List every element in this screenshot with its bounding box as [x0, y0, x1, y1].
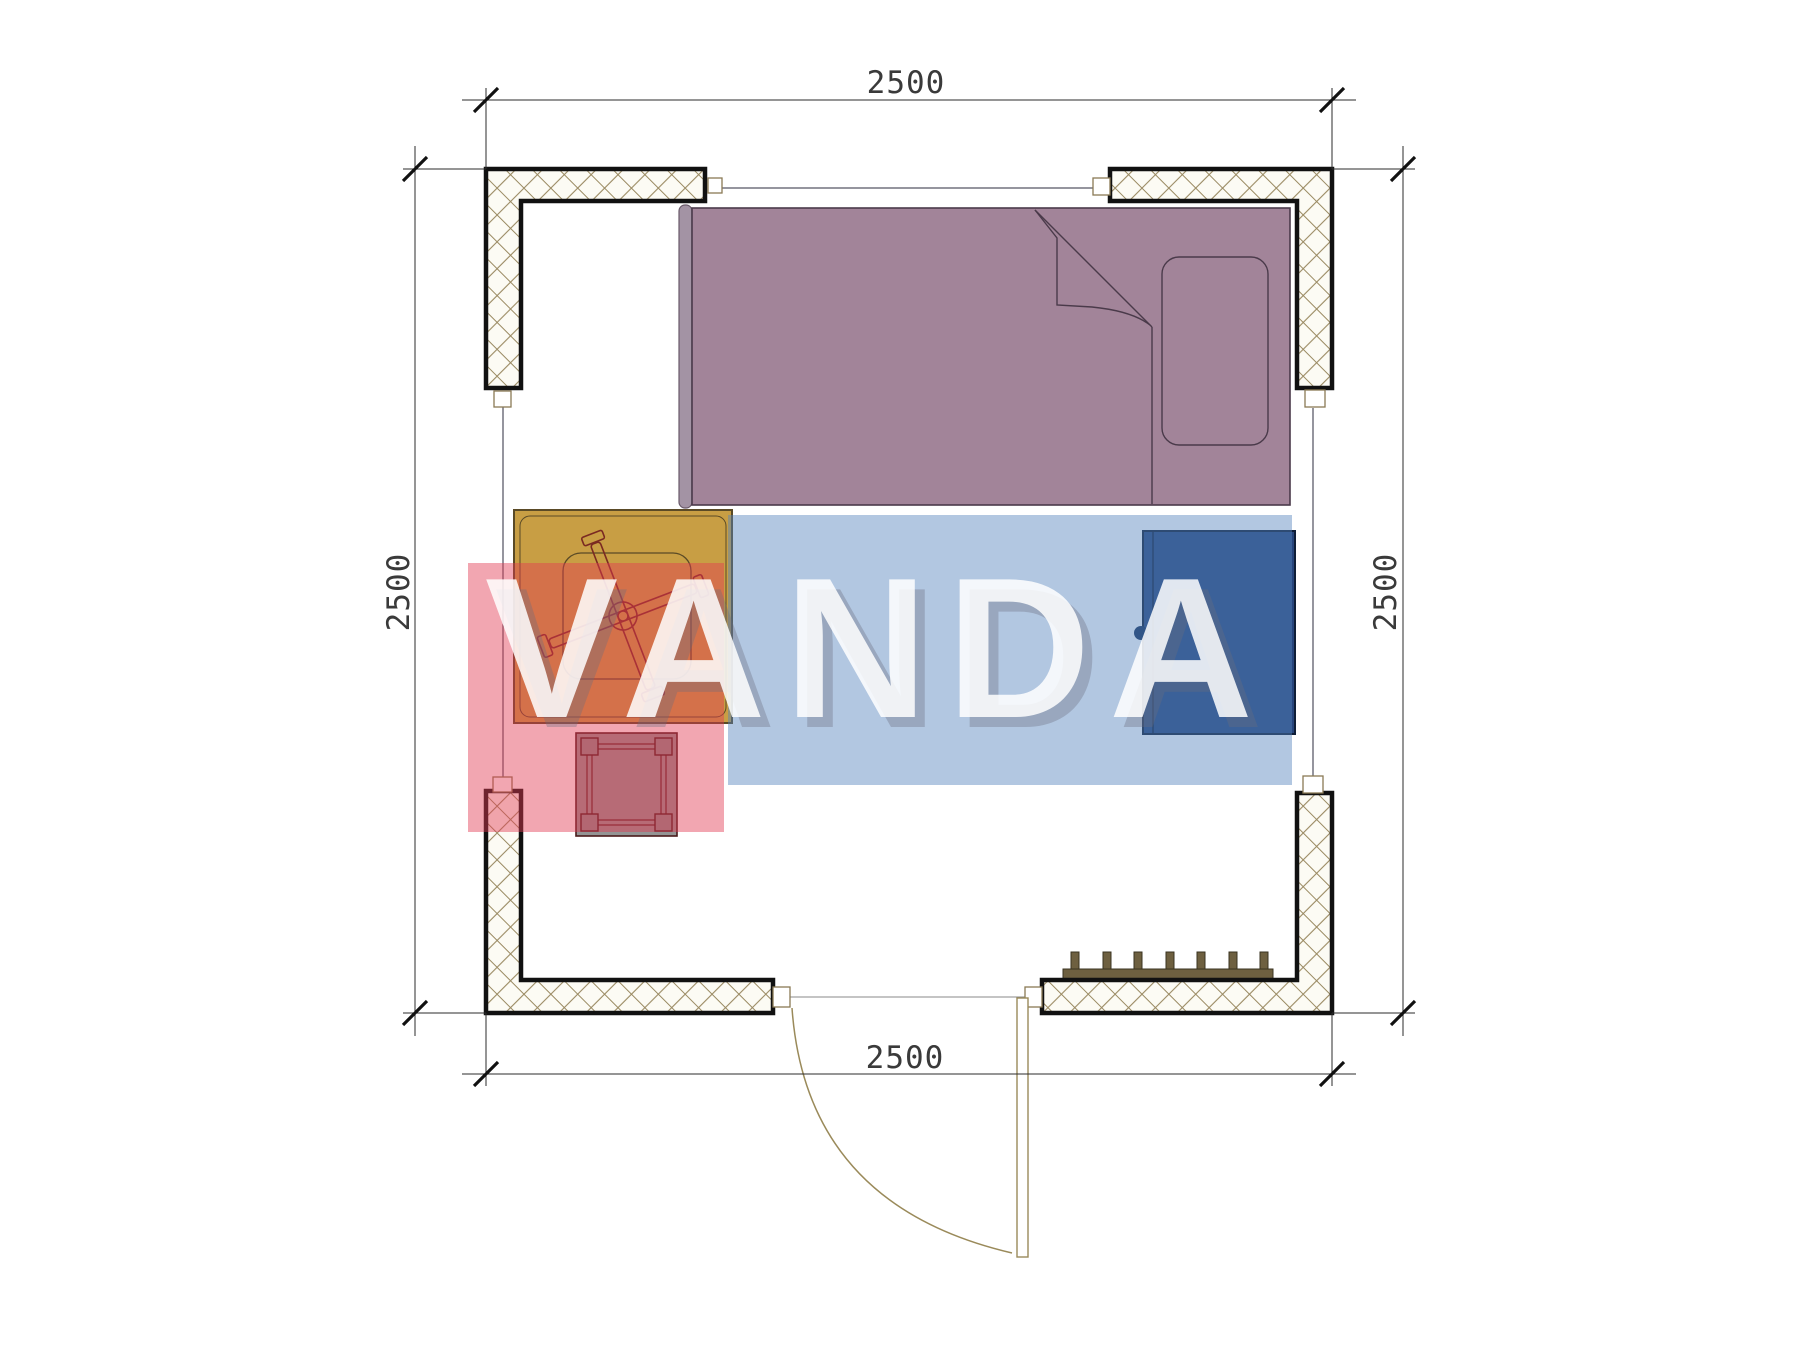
- dimension-label-left: 2500: [381, 553, 417, 632]
- radiator-section: [1071, 952, 1079, 969]
- wall-bottom-right: [1042, 793, 1332, 1013]
- dimension-label-top: 2500: [867, 65, 946, 101]
- watermark-text: VANDA: [485, 537, 1271, 760]
- pillow: [1162, 257, 1268, 445]
- door-leaf: [1017, 998, 1028, 1257]
- dimension-label-right: 2500: [1368, 553, 1404, 632]
- floor-plan-page: 2500 2500 2500 2500 VANDA VANDA: [0, 0, 1800, 1350]
- bed-headboard: [679, 205, 692, 508]
- radiator-section: [1166, 952, 1174, 969]
- radiator: [1063, 952, 1273, 981]
- radiator-section: [1229, 952, 1237, 969]
- watermark: VANDA VANDA: [468, 515, 1292, 832]
- radiator-section: [1103, 952, 1111, 969]
- floor-plan-drawing: 2500 2500 2500 2500 VANDA VANDA: [0, 0, 1800, 1350]
- radiator-section: [1197, 952, 1205, 969]
- door: [773, 987, 1042, 1257]
- wall-top-left: [486, 169, 705, 388]
- radiator-section: [1260, 952, 1268, 969]
- radiator-section: [1134, 952, 1142, 969]
- dimension-label-bottom: 2500: [866, 1040, 945, 1076]
- bed: [679, 205, 1290, 508]
